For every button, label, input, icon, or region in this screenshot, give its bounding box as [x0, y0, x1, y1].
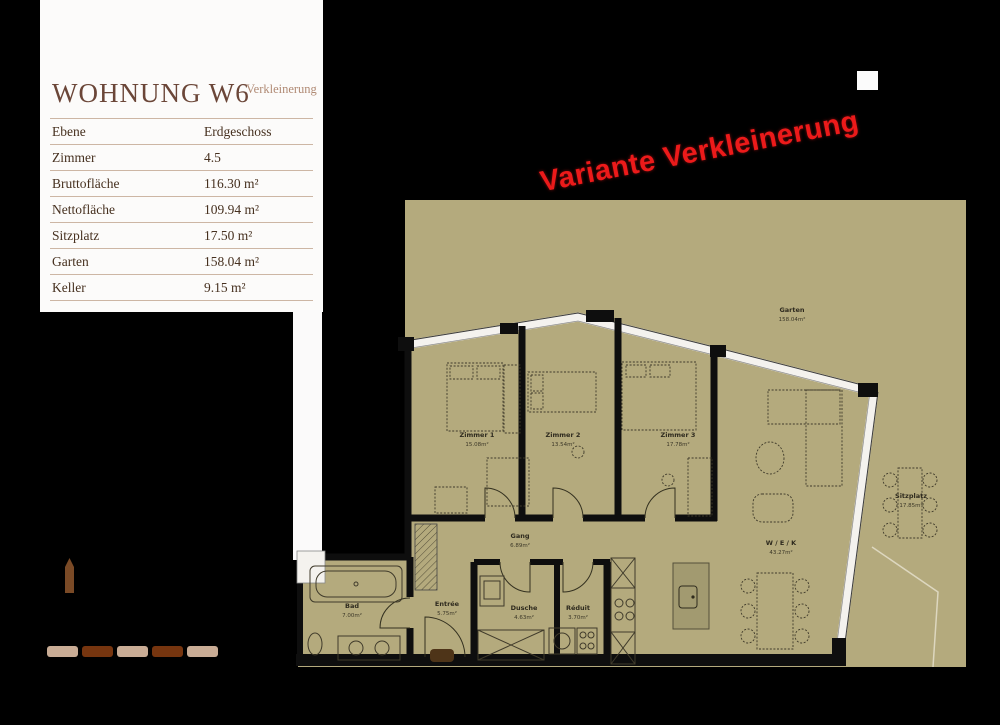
room-label: Sitzplatz — [895, 492, 927, 500]
room-area: 17.85m² — [899, 502, 922, 509]
logo-pad — [82, 646, 113, 657]
entry-door-mat — [430, 649, 454, 662]
logo-pad — [187, 646, 218, 657]
room-label: Garten — [779, 306, 804, 314]
room-label: Bad — [345, 602, 359, 610]
room-area: 3.70m² — [568, 614, 588, 621]
white-strip — [293, 310, 322, 560]
room-area: 7.00m² — [342, 612, 362, 619]
wall-niche — [297, 551, 325, 583]
room-area: 6.89m² — [510, 542, 530, 549]
room-label: Zimmer 1 — [460, 431, 495, 439]
room-area: 4.63m² — [514, 614, 534, 621]
logo-pad — [152, 646, 183, 657]
logo-marks — [47, 558, 218, 657]
room-area: 17.78m² — [666, 441, 689, 448]
room-area: 5.75m² — [437, 610, 457, 617]
room-label: Gang — [510, 532, 529, 540]
logo-tower-icon — [65, 567, 74, 593]
logo-pad — [47, 646, 78, 657]
room-area: 43.27m² — [769, 549, 792, 556]
logo-pad — [117, 646, 148, 657]
kitchen-island — [673, 563, 709, 629]
room-area: 158.04m² — [779, 316, 806, 323]
logo-tower-icon — [65, 558, 74, 567]
room-label: Zimmer 3 — [661, 431, 696, 439]
page: { "panel": { "title": "WOHNUNG W6", "sub… — [0, 0, 1000, 725]
room-label: W / E / K — [766, 539, 797, 547]
room-area: 13.54m² — [551, 441, 574, 448]
room-label: Réduit — [566, 604, 590, 612]
wardrobe-hatched — [415, 524, 437, 590]
room-label: Entrée — [435, 600, 460, 608]
room-area: 15.08m² — [465, 441, 488, 448]
room-label: Zimmer 2 — [546, 431, 581, 439]
floor-plan: Zimmer 1 15.08m² Zimmer 2 13.54m² Zimmer… — [0, 0, 1000, 725]
white-square-marker — [857, 71, 878, 90]
room-label: Dusche — [511, 604, 538, 612]
